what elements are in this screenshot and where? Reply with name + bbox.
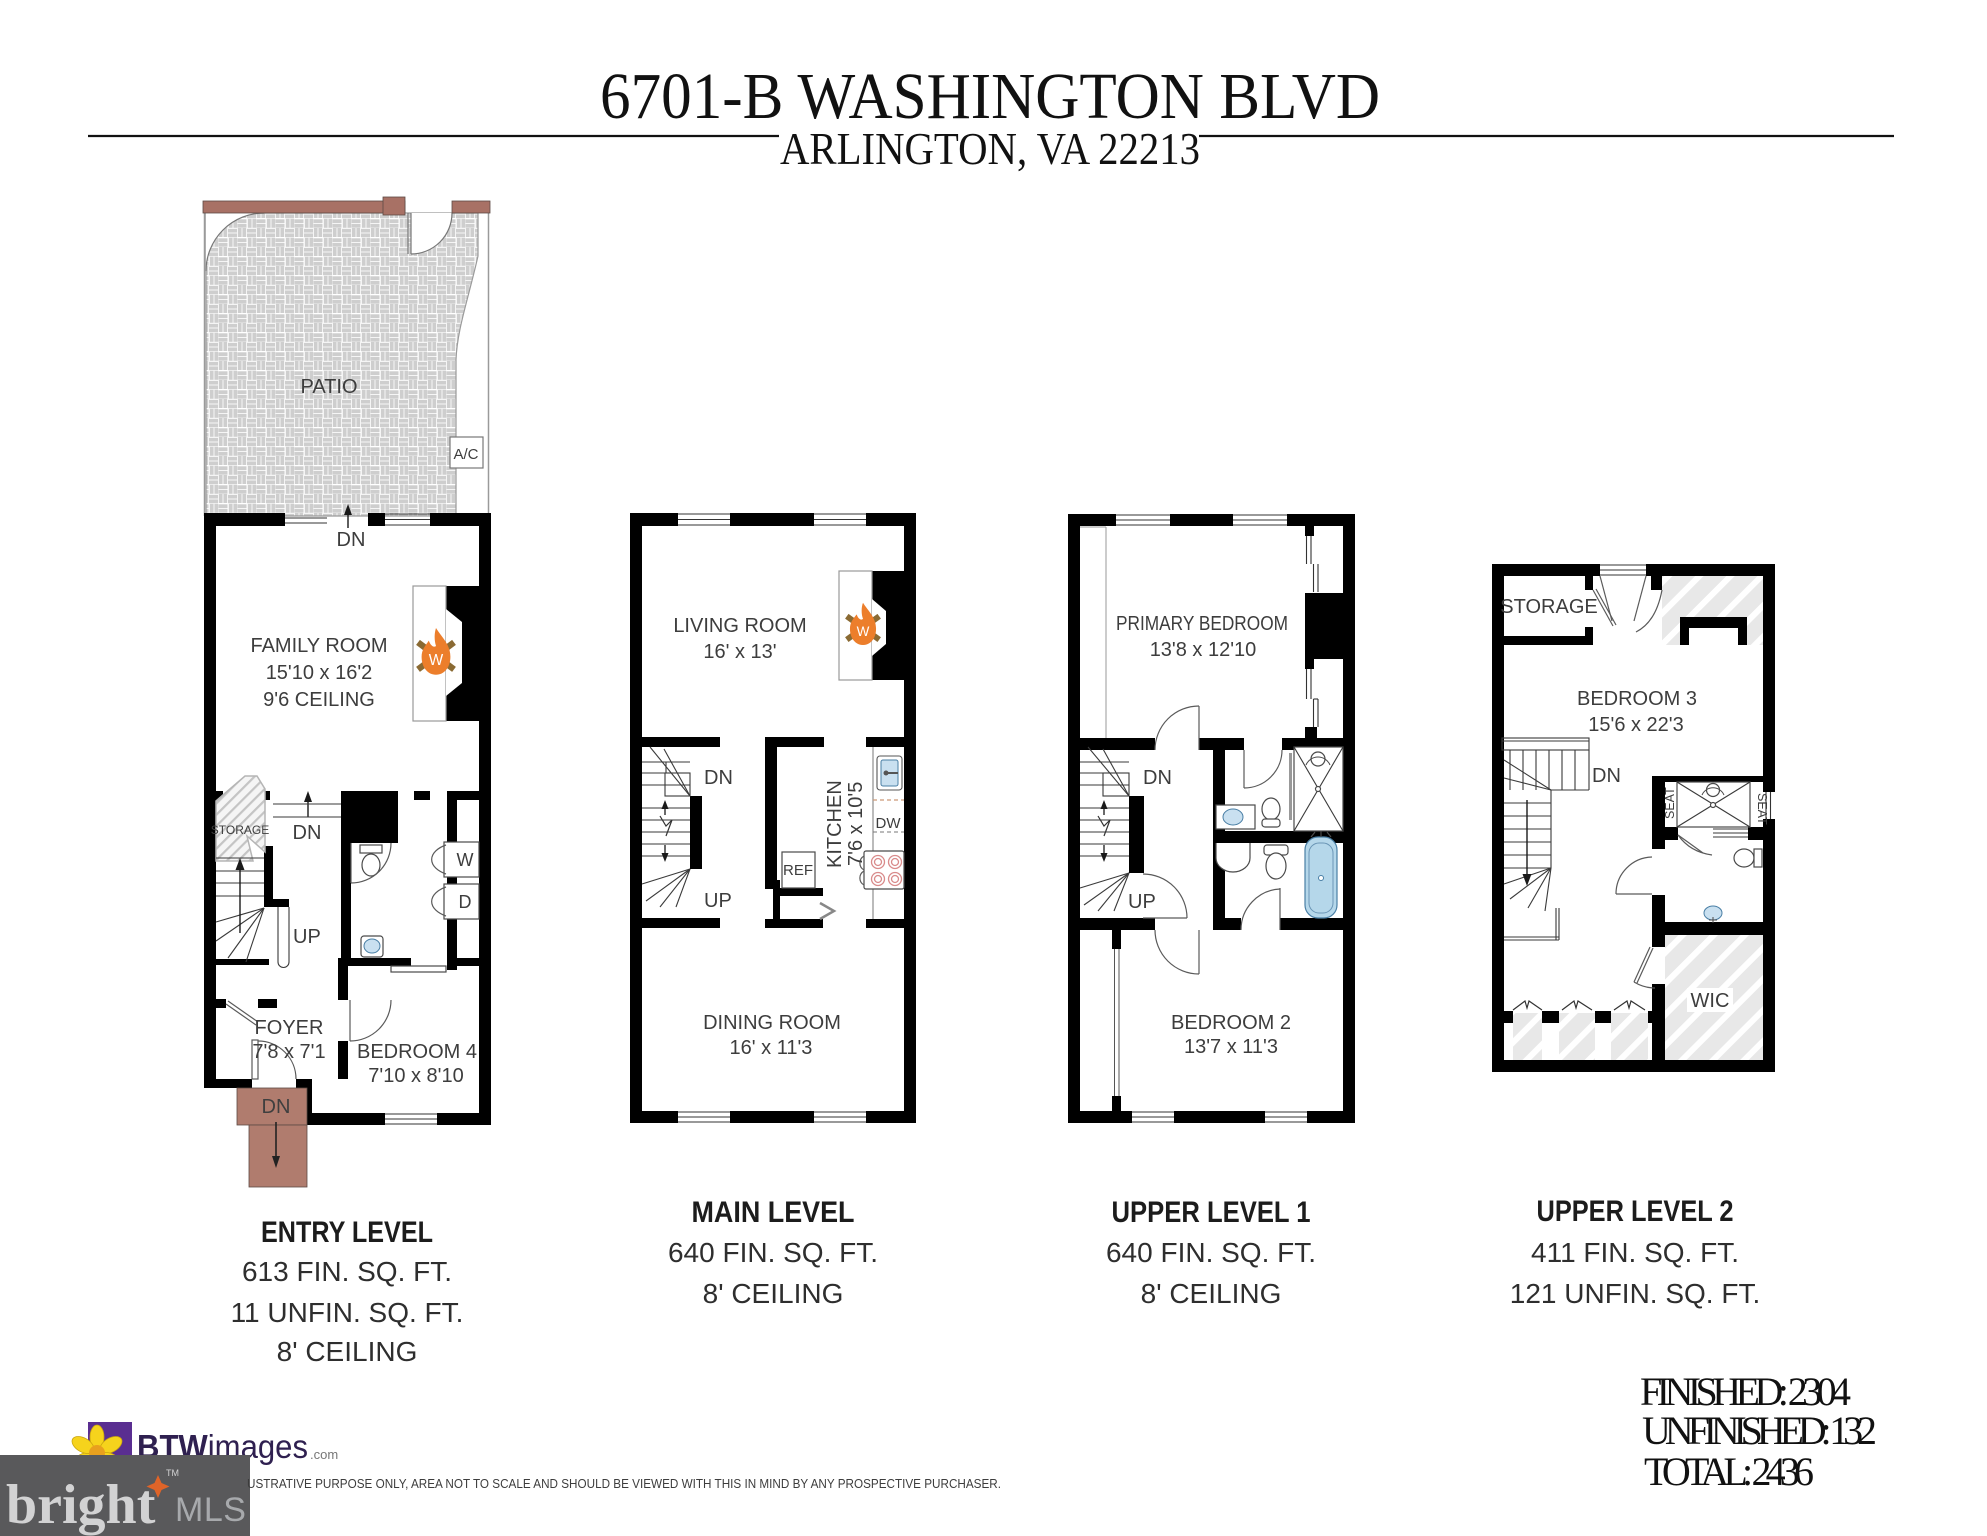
svg-text:BEDROOM 3: BEDROOM 3 [1577,688,1697,710]
svg-text:DN: DN [337,529,366,551]
svg-text:7'6 x 10'5: 7'6 x 10'5 [845,782,867,866]
svg-text:MLS: MLS [175,1491,246,1529]
svg-text:.com: .com [310,1447,338,1462]
svg-text:15'10 x 16'2: 15'10 x 16'2 [266,662,373,684]
svg-text:STORAGE: STORAGE [1500,596,1597,618]
svg-text:STORAGE: STORAGE [211,823,269,837]
svg-text:15'6 x 22'3: 15'6 x 22'3 [1588,714,1684,736]
svg-text:bright: bright [6,1474,156,1536]
svg-text:DW: DW [876,815,902,832]
svg-text:A/C: A/C [453,446,478,463]
svg-text:640 FIN. SQ. FT.: 640 FIN. SQ. FT. [668,1237,878,1268]
svg-text:BEDROOM 4: BEDROOM 4 [357,1041,477,1063]
svg-text:PRIMARY BEDROOM: PRIMARY BEDROOM [1116,613,1288,635]
svg-text:13'8 x 12'10: 13'8 x 12'10 [1150,639,1257,661]
svg-text:MAIN LEVEL: MAIN LEVEL [692,1196,855,1229]
svg-text:LIVING ROOM: LIVING ROOM [673,615,806,637]
svg-text:411 FIN. SQ. FT.: 411 FIN. SQ. FT. [1531,1237,1739,1268]
svg-text:8' CEILING: 8' CEILING [1141,1278,1282,1309]
svg-text:TOTAL: 2436: TOTAL: 2436 [1644,1449,1814,1494]
svg-text:FAMILY ROOM: FAMILY ROOM [250,635,387,657]
svg-text:WIC: WIC [1691,990,1730,1012]
svg-text:UP: UP [293,926,321,948]
svg-text:7'8 x 7'1: 7'8 x 7'1 [252,1041,325,1063]
svg-text:UP: UP [1128,891,1156,913]
svg-text:11 UNFIN. SQ. FT.: 11 UNFIN. SQ. FT. [231,1297,464,1328]
svg-text:PATIO: PATIO [300,376,357,398]
svg-text:TM: TM [166,1468,179,1478]
svg-text:16' x 11'3: 16' x 11'3 [730,1037,813,1059]
svg-text:DINING ROOM: DINING ROOM [703,1012,841,1034]
svg-text:8' CEILING: 8' CEILING [277,1336,418,1367]
svg-text:8' CEILING: 8' CEILING [703,1278,844,1309]
svg-text:DN: DN [293,822,322,844]
svg-text:7'10 x 8'10: 7'10 x 8'10 [368,1065,464,1087]
svg-text:USTRATIVE PURPOSE ONLY, AREA N: USTRATIVE PURPOSE ONLY, AREA NOT TO SCAL… [247,1476,1001,1491]
svg-text:ARLINGTON, VA 22213: ARLINGTON, VA 22213 [780,123,1200,174]
svg-text:13'7 x 11'3: 13'7 x 11'3 [1184,1036,1278,1058]
svg-text:SEAT: SEAT [1663,787,1677,819]
svg-text:UNFINISHED: 132: UNFINISHED: 132 [1642,1408,1877,1453]
svg-text:UP: UP [704,890,732,912]
svg-text:DN: DN [1592,765,1621,787]
svg-text:W: W [429,652,444,669]
svg-text:UPPER LEVEL 1: UPPER LEVEL 1 [1112,1196,1311,1229]
svg-text:613 FIN. SQ. FT.: 613 FIN. SQ. FT. [242,1256,452,1287]
svg-text:BEDROOM 2: BEDROOM 2 [1171,1012,1291,1034]
svg-text:UPPER LEVEL 2: UPPER LEVEL 2 [1537,1195,1734,1228]
svg-text:16' x 13': 16' x 13' [703,641,776,663]
svg-text:REF: REF [783,862,813,879]
svg-text:121 UNFIN. SQ. FT.: 121 UNFIN. SQ. FT. [1510,1278,1761,1309]
svg-text:FOYER: FOYER [255,1017,324,1039]
svg-text:W: W [857,624,870,639]
svg-text:DN: DN [704,767,733,789]
svg-text:W: W [457,850,474,870]
svg-text:SEAT: SEAT [1755,793,1769,825]
svg-text:DN: DN [1143,767,1172,789]
svg-text:D: D [459,892,472,912]
svg-text:9'6 CEILING: 9'6 CEILING [263,689,375,711]
svg-text:640 FIN. SQ. FT.: 640 FIN. SQ. FT. [1106,1237,1316,1268]
svg-text:ENTRY LEVEL: ENTRY LEVEL [261,1216,433,1249]
svg-text:KITCHEN: KITCHEN [824,780,846,868]
svg-text:DN: DN [262,1096,291,1118]
